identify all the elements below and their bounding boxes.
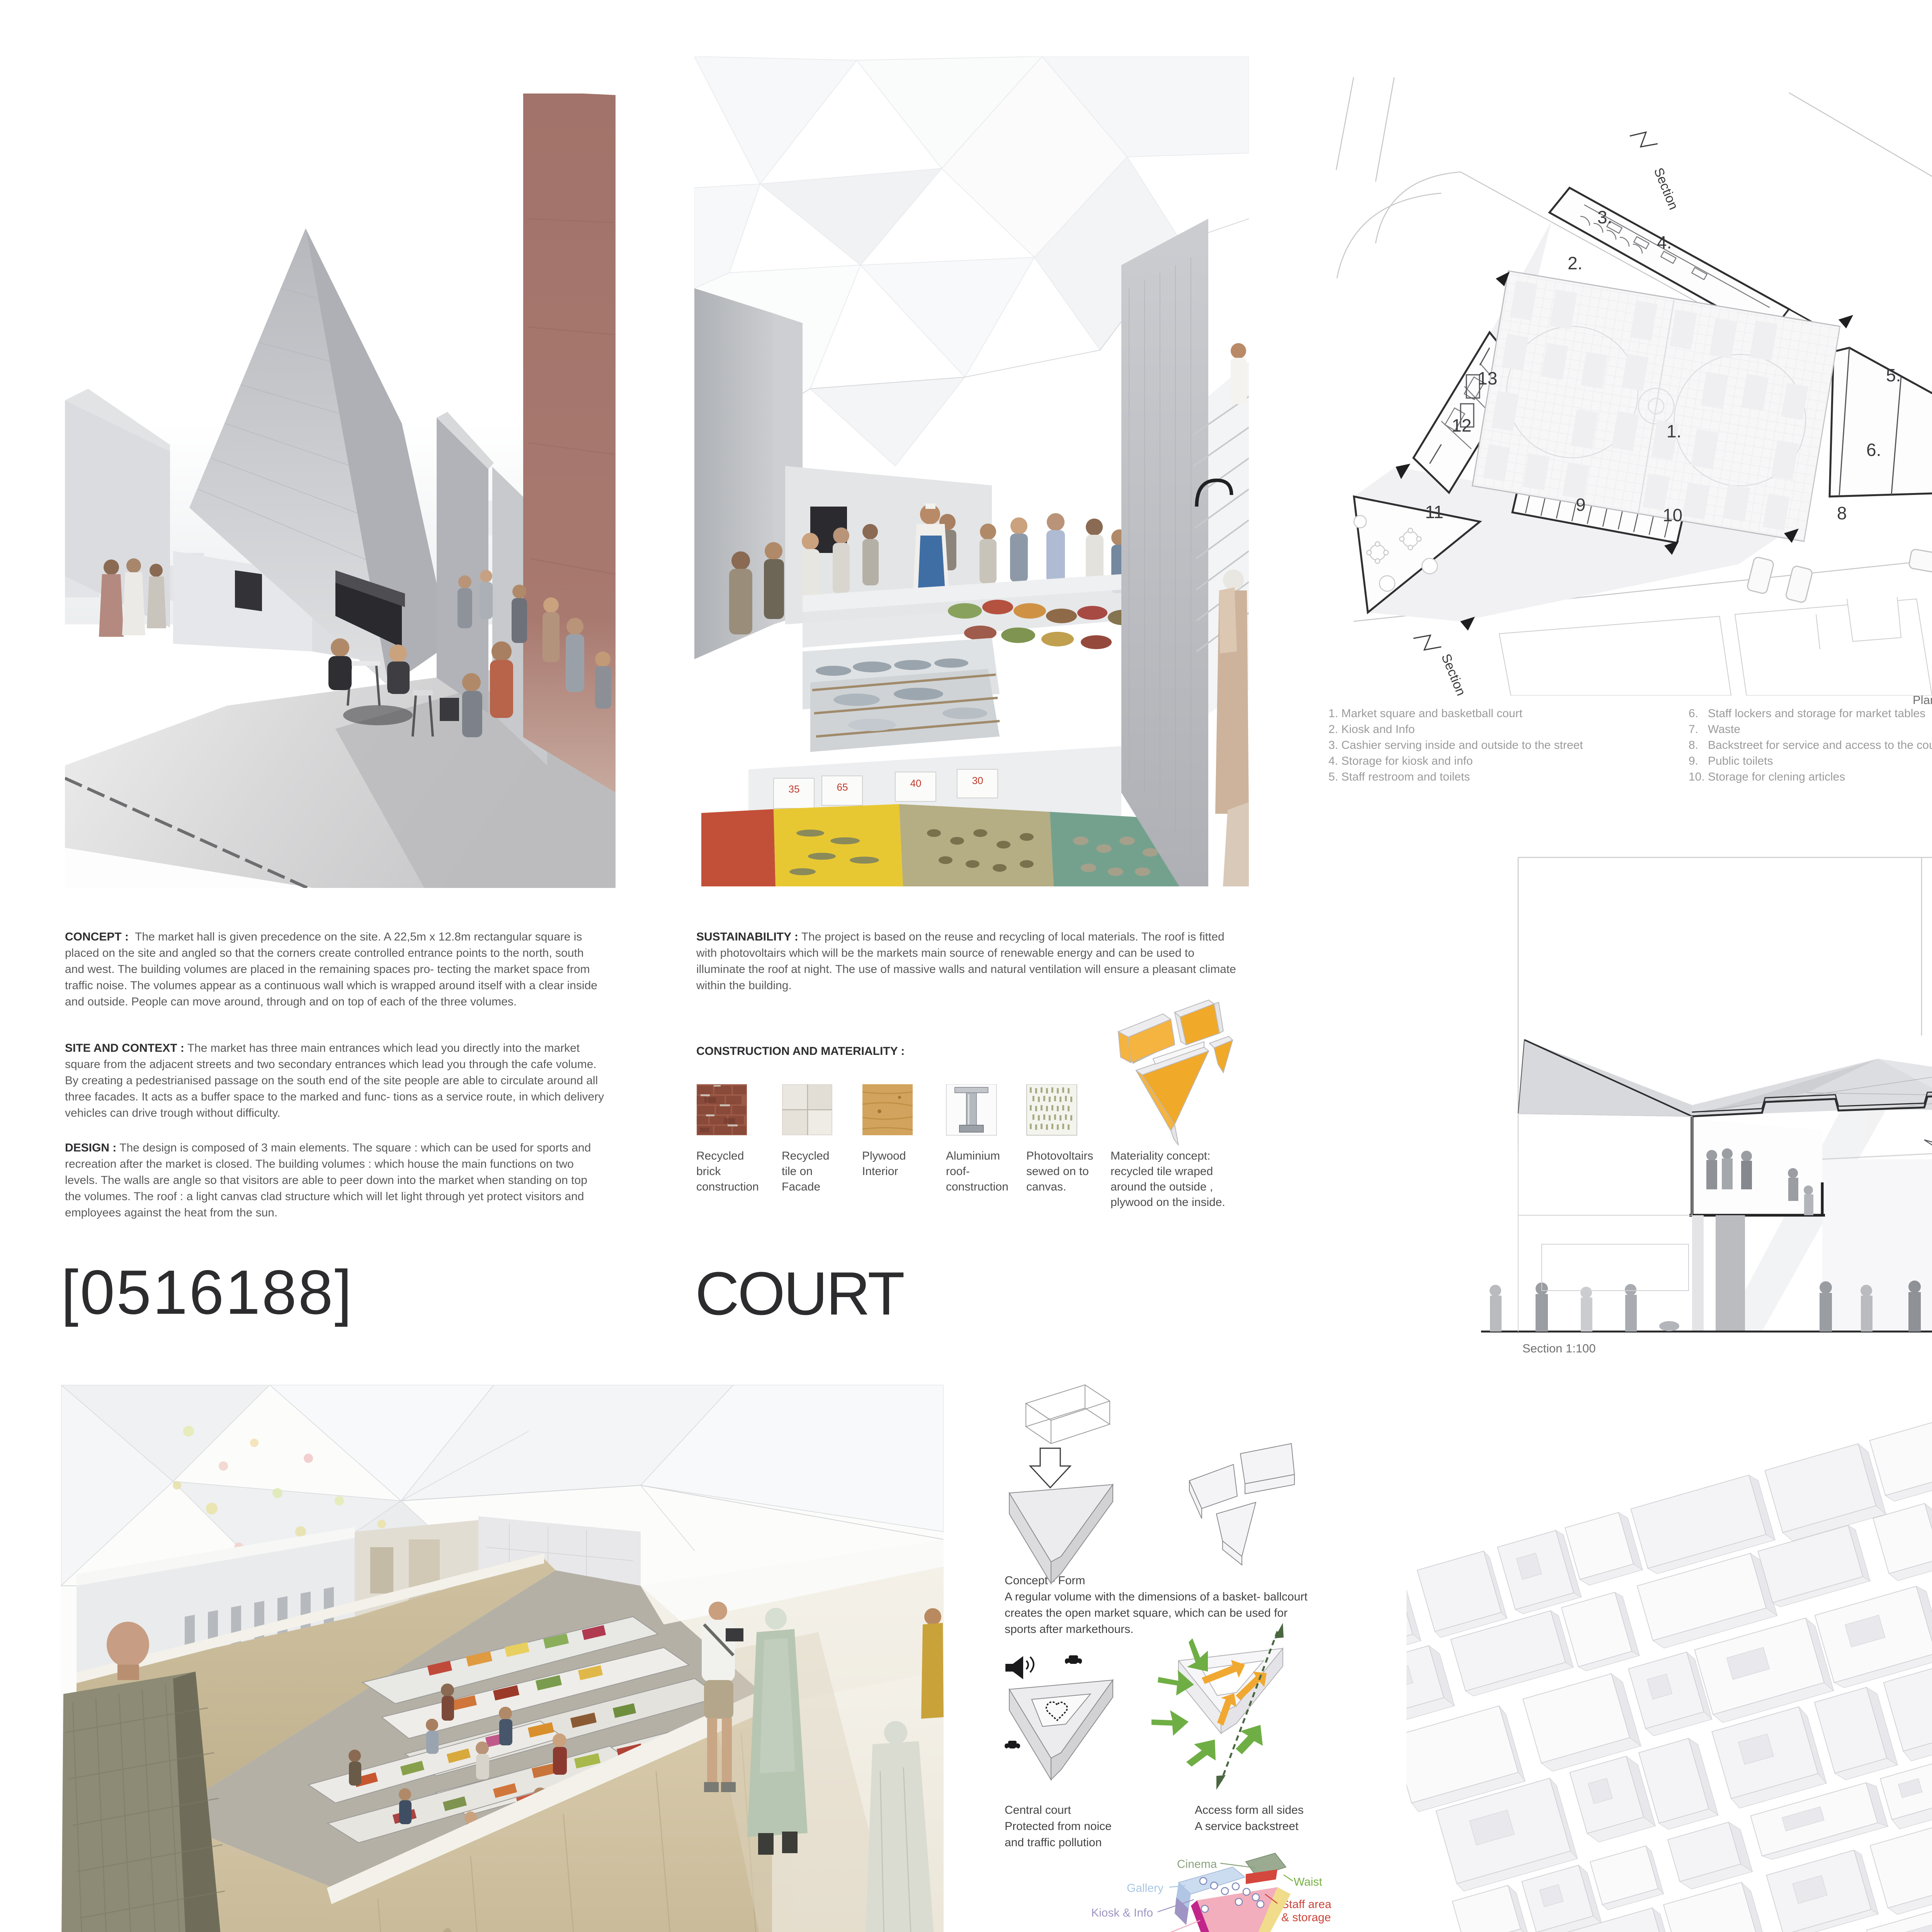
- svg-text:5.: 5.: [1886, 365, 1901, 385]
- svg-text:12: 12: [1452, 415, 1471, 435]
- svg-text:9: 9: [1576, 495, 1586, 515]
- svg-text:10: 10: [1663, 505, 1682, 525]
- svg-text:Section: Section: [1651, 166, 1681, 212]
- svg-text:11: 11: [1425, 502, 1444, 522]
- svg-text:Section: Section: [1439, 652, 1469, 696]
- svg-text:30: 30: [972, 775, 983, 786]
- svg-text:3.: 3.: [1597, 207, 1612, 227]
- svg-text:40: 40: [910, 777, 922, 789]
- svg-text:8: 8: [1837, 503, 1847, 523]
- svg-text:6.: 6.: [1866, 440, 1881, 460]
- svg-text:35: 35: [789, 783, 800, 795]
- svg-text:2.: 2.: [1568, 253, 1582, 273]
- svg-text:65: 65: [837, 781, 848, 793]
- svg-text:13: 13: [1478, 368, 1497, 388]
- svg-text:4.: 4.: [1657, 232, 1672, 252]
- svg-text:1.: 1.: [1667, 421, 1681, 441]
